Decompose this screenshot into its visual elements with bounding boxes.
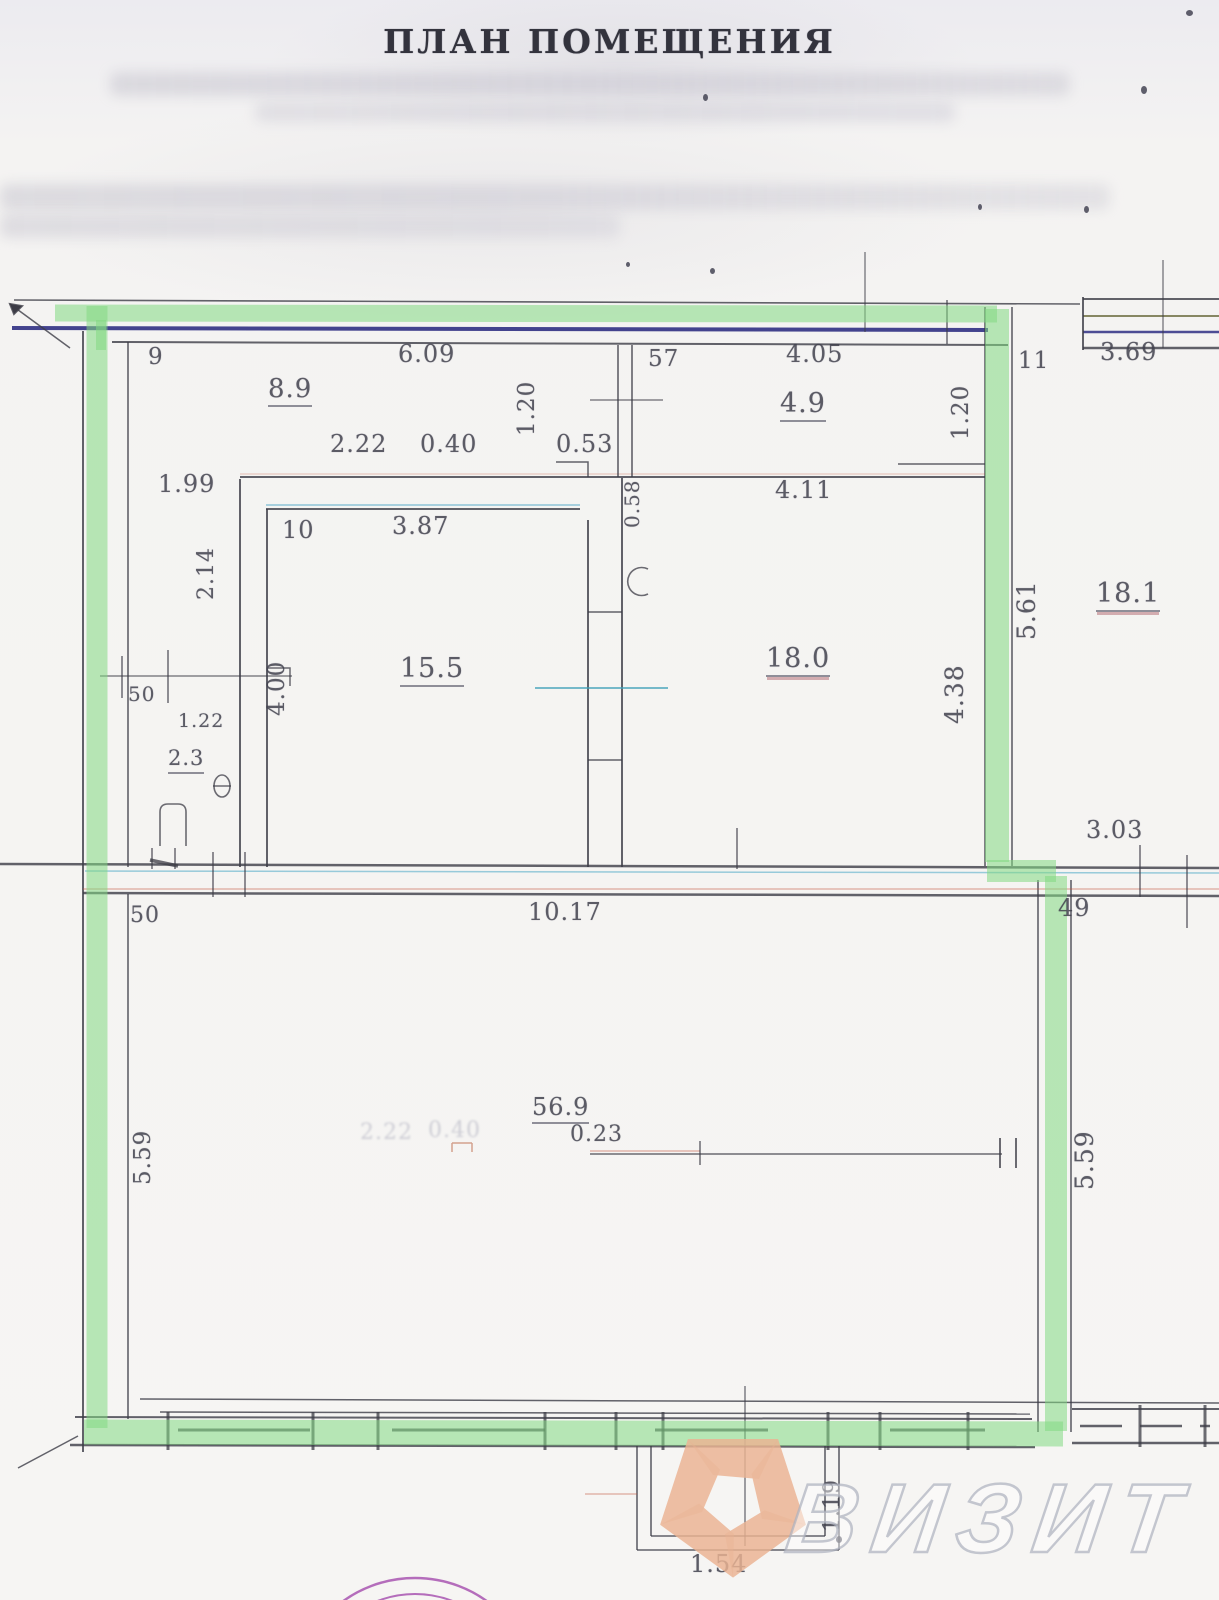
dimension-label: 2.3 — [168, 748, 204, 774]
dimension-label: 1.54 — [690, 1552, 747, 1576]
dimension-label: 0.23 — [570, 1124, 623, 1146]
dimension-label: 4.11 — [775, 478, 832, 502]
dimension-label: 8.9 — [268, 376, 312, 407]
dimension-label: 4.00 — [266, 661, 289, 716]
dimension-label: 0.53 — [556, 432, 613, 456]
dimension-label: 4.05 — [786, 342, 843, 366]
dimension-label: 6.09 — [398, 342, 455, 366]
dimension-label: 2.22 — [330, 432, 387, 456]
dimension-label: 0.58 — [622, 479, 642, 528]
dimension-label: 4.38 — [942, 664, 967, 724]
dimension-label: 5.59 — [132, 1130, 155, 1185]
dimension-label: 1.22 — [178, 712, 224, 731]
dimension-label: 2.22 — [360, 1122, 413, 1144]
scanned-floor-plan-page: ПЛАН ПОМЕЩЕНИЯ — [0, 0, 1219, 1600]
door-symbols — [160, 568, 648, 847]
dimension-label: 10.17 — [528, 900, 602, 924]
dimension-label: 4.9 — [780, 390, 826, 422]
dimension-label: 3.87 — [392, 514, 449, 538]
interior-walls — [128, 342, 985, 1550]
floor-plan-drawing — [0, 0, 1219, 1600]
dimension-label: 5.61 — [1014, 580, 1039, 640]
dimension-label: 2.14 — [196, 547, 218, 600]
dimension-label: 3.69 — [1100, 340, 1157, 364]
dimension-label: 11 — [1018, 350, 1049, 373]
dimension-label: 1.20 — [950, 385, 973, 440]
dimension-label: 56.9 — [532, 1095, 589, 1124]
dimension-label: 1.99 — [158, 472, 215, 496]
dimension-label: 18.1 — [1096, 580, 1160, 612]
dimension-ticks — [100, 252, 1205, 1450]
dimension-label: 1.19 — [822, 1479, 844, 1532]
dimension-label: 57 — [648, 348, 679, 371]
dimension-label: 5.59 — [1072, 1130, 1097, 1190]
dimension-label: 50 — [128, 684, 155, 704]
stamp-arc — [297, 1578, 533, 1600]
dimension-label: 0.40 — [428, 1120, 481, 1142]
dimension-label: 10 — [282, 518, 315, 542]
dimension-label: 18.0 — [766, 645, 830, 677]
dimension-label: 15.5 — [400, 655, 464, 687]
dimension-label: 1.20 — [516, 381, 539, 436]
dimension-label: 3.03 — [1086, 818, 1143, 842]
dimension-label: 9 — [148, 346, 164, 369]
dimension-label: 49 — [1058, 896, 1091, 920]
dimension-label: 50 — [130, 905, 160, 927]
dimension-label: 0.40 — [420, 432, 477, 456]
